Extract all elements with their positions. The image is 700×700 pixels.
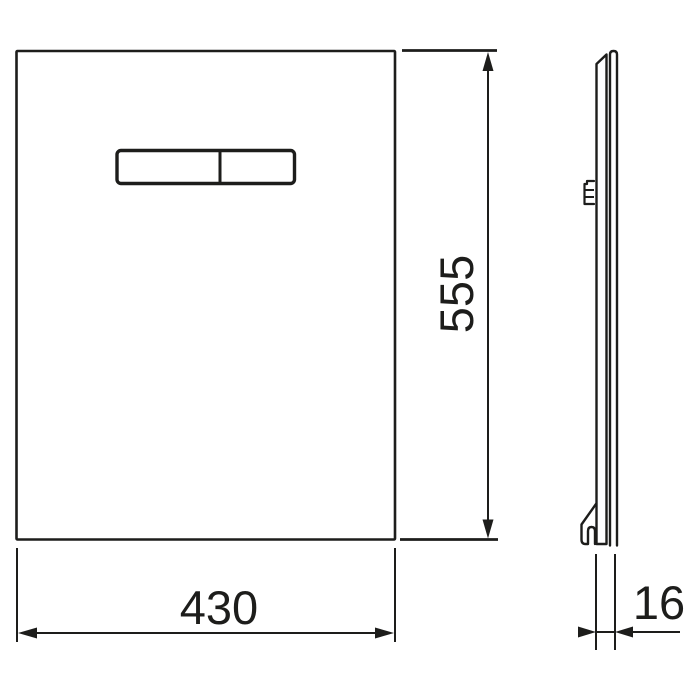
width-arrowhead-right: [375, 628, 394, 639]
height-arrowhead-down: [483, 520, 494, 539]
clip-outline: [585, 181, 595, 204]
button-outline: [117, 151, 295, 184]
width-dimension-label: 430: [180, 581, 258, 634]
technical-drawing: 555 430 16: [0, 0, 700, 700]
height-dimension-label: 555: [430, 255, 483, 333]
depth-arrowhead-left: [578, 627, 596, 638]
dimension-height: 555: [400, 51, 498, 540]
actuation-buttons: [117, 151, 295, 184]
width-arrowhead-left: [18, 628, 37, 639]
front-view: [17, 51, 396, 540]
dimension-width: 430: [17, 548, 395, 642]
depth-dimension-label: 16: [633, 576, 685, 629]
depth-arrowhead-right: [615, 627, 633, 638]
side-bottom-hook: [582, 504, 597, 544]
side-back-panel: [597, 55, 607, 545]
front-panel-outline: [17, 51, 396, 540]
side-glass-sheet: [610, 51, 617, 546]
side-view: [582, 51, 618, 546]
dimension-depth: 16: [578, 554, 685, 650]
height-arrowhead-up: [483, 52, 494, 71]
side-mounting-clip: [585, 181, 595, 204]
